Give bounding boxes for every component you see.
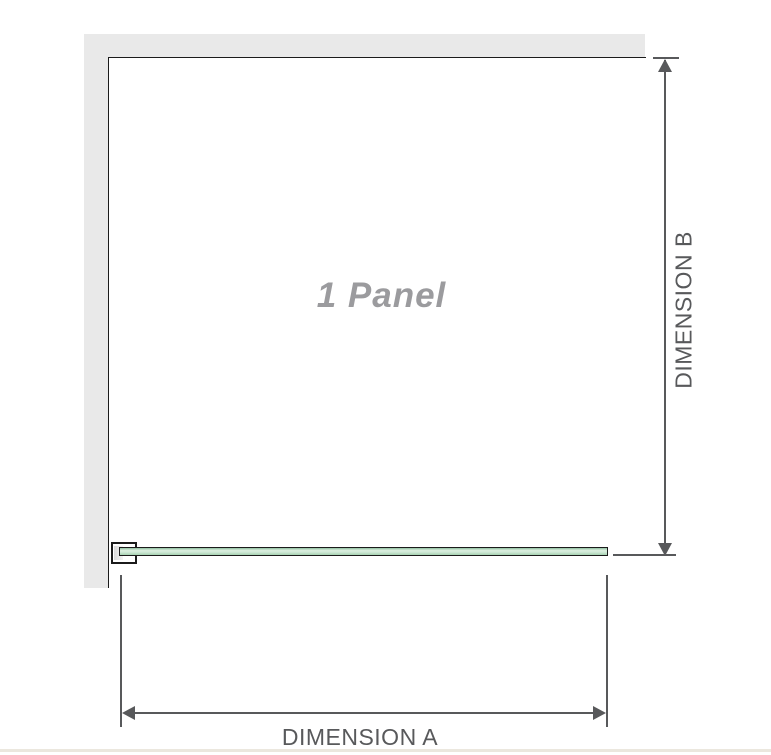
- dimension-b-arrow-up-icon: [658, 59, 672, 72]
- dimension-a-arrow-left-icon: [122, 706, 135, 720]
- dimension-a-extension-left: [120, 575, 122, 727]
- dimension-b-line: [664, 60, 666, 556]
- glass-panel-bar: [119, 547, 608, 556]
- panel-label: 1 Panel: [109, 276, 654, 316]
- dimension-a-extension-right: [606, 575, 608, 727]
- panel-outline: [108, 57, 646, 588]
- wall-segment-left: [84, 34, 109, 588]
- dimension-a-arrow-right-icon: [593, 706, 606, 720]
- wall-segment-top: [84, 34, 645, 58]
- panel-dimension-diagram: 1 Panel DIMENSION B DIMENSION A: [0, 0, 771, 755]
- dimension-a-line: [133, 712, 595, 714]
- dimension-a-label: DIMENSION A: [140, 724, 580, 751]
- floor-strip: [0, 749, 771, 752]
- dimension-b-label: DIMENSION B: [671, 231, 698, 389]
- dimension-b-bottom-tick: [613, 554, 676, 556]
